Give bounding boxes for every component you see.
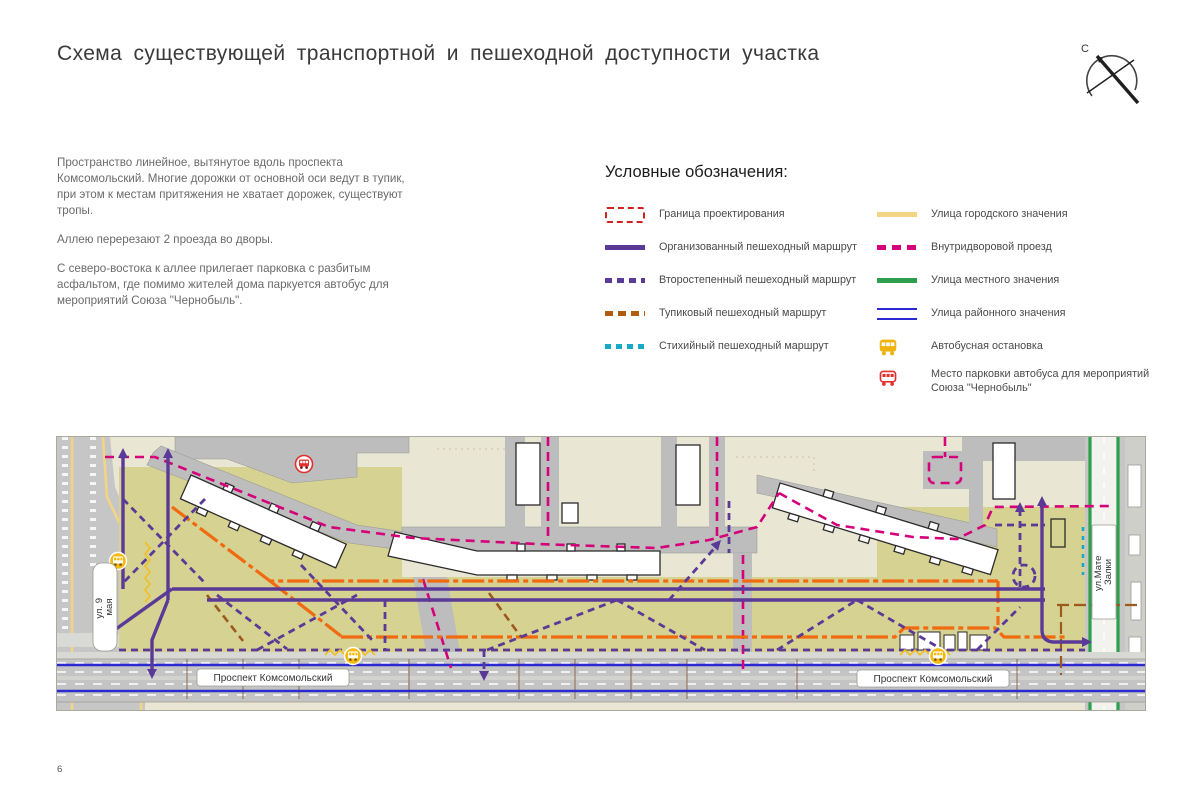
page-number: 6: [57, 764, 62, 775]
bus-parking-icon: [296, 456, 313, 473]
legend-title: Условные обозначения:: [605, 163, 1165, 182]
avenue-label: Проспект Комсомольский: [874, 674, 993, 685]
legend-item-bus-parking: Место парковки автобуса для мероприятий …: [877, 363, 1162, 400]
city-street-swatch: [877, 212, 919, 217]
street-left-label: мая: [104, 599, 115, 616]
bus-stop-icon: [930, 648, 947, 665]
legend-item-spontaneous-route: Стихийный пешеходный маршрут: [605, 330, 877, 363]
legend-item-boundary: Граница проектирования: [605, 198, 877, 231]
compass-north-label: С: [1081, 43, 1089, 55]
description-text: Пространство линейное, вытянутое вдоль п…: [57, 155, 409, 322]
slide: Схема существующей транспортной и пешехо…: [0, 0, 1200, 800]
district-street-swatch: [877, 308, 919, 320]
legend-item-district-street: Улица районного значения: [877, 297, 1162, 330]
paragraph: С северо-востока к аллее прилегает парко…: [57, 261, 409, 309]
legend-item-deadend-route: Тупиковый пешеходный маршрут: [605, 297, 877, 330]
site-accessibility-map: ул. 9 мая ул.Мате Залки Проспект Комсомо…: [57, 437, 1145, 710]
bus-stop-icon: [877, 336, 919, 358]
deadend-route-swatch: [605, 311, 647, 316]
street-right-label: Залки: [1103, 559, 1114, 585]
legend-item-yard-driveway: Внутридворовой проезд: [877, 231, 1162, 264]
legend-item-organized-route: Организованный пешеходный маршрут: [605, 231, 877, 264]
yard-driveway-swatch: [877, 245, 919, 250]
secondary-route-swatch: [605, 278, 647, 283]
avenue-label: Проспект Комсомольский: [214, 673, 333, 684]
organized-route-swatch: [605, 245, 647, 250]
legend-item-bus-stop: Автобусная остановка: [877, 330, 1162, 363]
compass-icon: С: [1072, 36, 1146, 112]
local-street-swatch: [877, 278, 919, 283]
boundary-swatch: [605, 207, 647, 223]
bus-parking-icon: [877, 367, 919, 389]
spontaneous-route-swatch: [605, 344, 647, 349]
legend-item-city-street: Улица городского значения: [877, 198, 1162, 231]
page-title: Схема существующей транспортной и пешехо…: [57, 42, 1057, 66]
paragraph: Аллею перерезают 2 проезда во дворы.: [57, 232, 409, 248]
svg-text:ул. 9 мая: ул. 9 мая: [94, 595, 115, 618]
legend-item-local-street: Улица местного значения: [877, 264, 1162, 297]
paragraph: Пространство линейное, вытянутое вдоль п…: [57, 155, 409, 219]
legend: Условные обозначения: Граница проектиров…: [605, 163, 1165, 400]
bus-stop-icon: [345, 648, 362, 665]
legend-item-secondary-route: Второстепенный пешеходный маршрут: [605, 264, 877, 297]
